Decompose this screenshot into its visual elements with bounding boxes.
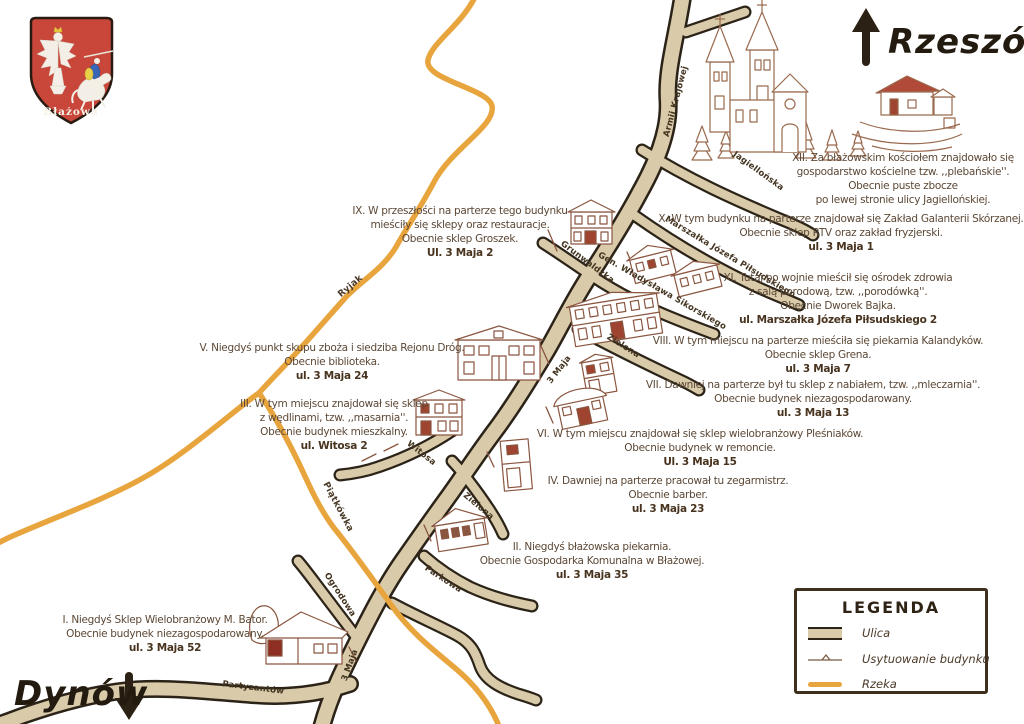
legend-item-label: Usytuowanie budynku xyxy=(862,652,990,666)
annotation-line: po lewej stronie ulicy Jagiellońskiej. xyxy=(792,193,1014,207)
annotation-line: I. Niegdyś Sklep Wielobranżowy M. Bator. xyxy=(62,613,267,627)
annotation-address: ul. 3 Maja 1 xyxy=(658,240,1023,254)
annotation-address: ul. Marszałka Józefa Piłsudskiego 2 xyxy=(724,313,953,327)
river-label-piatkowka: Piątkówka xyxy=(320,480,356,534)
annotation-address: ul. 3 Maja 13 xyxy=(646,406,980,420)
annotation-address: Ul. 3 Maja 2 xyxy=(352,246,567,260)
annotation-line: VI. W tym miejscu znajdował się sklep wi… xyxy=(537,427,863,441)
building-sketch-v xyxy=(455,326,543,380)
annotation-line: IV. Dawniej na parterze pracował tu zega… xyxy=(548,474,789,488)
annotation-line: X. W tym budynku na parterze znajdował s… xyxy=(658,212,1023,226)
arrow-north-icon xyxy=(852,8,880,62)
annotation-line: gospodarstwo kościelne tzw. ,,plebańskie… xyxy=(792,165,1014,179)
annotation-line: Obecnie budynek mieszkalny. xyxy=(240,425,428,439)
annotation-IX: IX. W przeszłości na parterze tego budyn… xyxy=(352,204,567,260)
annotation-line: IX. W przeszłości na parterze tego budyn… xyxy=(352,204,567,218)
annotation-line: Obecnie budynek niezagospodarowany. xyxy=(62,627,267,641)
legend-item-river: Rzeka xyxy=(808,677,985,691)
farmstead-sketch xyxy=(852,76,962,151)
legend-item-label: Rzeka xyxy=(862,677,897,691)
annotation-VI: VI. W tym miejscu znajdował się sklep wi… xyxy=(537,427,863,469)
building-sketch-iv xyxy=(500,439,532,491)
annotation-line: Obecnie biblioteka. xyxy=(200,355,465,369)
coat-of-arms-town-name: Błażowa xyxy=(43,106,99,118)
annotation-line: z wędlinami, tzw. ,,masarnia''. xyxy=(240,411,428,425)
annotation-X: X. W tym budynku na parterze znajdował s… xyxy=(658,212,1023,254)
annotation-line: II. Niegdyś błażowska piekarnia. xyxy=(480,540,705,554)
annotation-line: Obecnie barber. xyxy=(548,488,789,502)
annotation-VIII: VIII. W tym miejscu na parterze mieściła… xyxy=(653,334,983,376)
coat-of-arms: Błażowa xyxy=(31,18,113,123)
legend-title: LEGENDA xyxy=(797,598,985,617)
annotation-XII: XII. Za błażowskim kościołem znajdowało … xyxy=(792,151,1014,207)
annotation-XI: XI. Tutaj po wojnie mieścił się ośrodek … xyxy=(724,271,953,327)
annotation-address: ul. 3 Maja 24 xyxy=(200,369,465,383)
annotation-line: Obecnie budynek niezagospodarowany. xyxy=(646,392,980,406)
annotation-V: V. Niegdyś punkt skupu zboża i siedziba … xyxy=(200,341,465,383)
annotation-IV: IV. Dawniej na parterze pracował tu zega… xyxy=(548,474,789,516)
direction-label-north: Rzeszów xyxy=(888,22,1024,62)
legend-item-building-location: Usytuowanie budynku xyxy=(808,649,985,668)
annotation-line: III. W tym miejscu znajdował się sklep xyxy=(240,397,428,411)
annotation-address: ul. 3 Maja 52 xyxy=(62,641,267,655)
annotation-line: VIII. W tym miejscu na parterze mieściła… xyxy=(653,334,983,348)
annotation-VII: VII. Dawniej na parterze był tu sklep z … xyxy=(646,378,980,420)
street-label-jagiellonska: Jagiellońska xyxy=(730,149,785,193)
direction-label-south: Dynów xyxy=(14,674,148,714)
street-swatch-icon xyxy=(808,627,842,640)
annotation-line: Obecnie Gospodarka Komunalna w Błażowej. xyxy=(480,554,705,568)
annotation-III: III. W tym miejscu znajdował się sklep z… xyxy=(240,397,428,453)
annotation-address: Ul. 3 Maja 15 xyxy=(537,455,863,469)
annotation-line: Obecnie sklep Grena. xyxy=(653,348,983,362)
river-swatch-icon xyxy=(808,682,842,687)
legend-item-street: Ulica xyxy=(808,626,985,640)
annotation-line: XII. Za błażowskim kościołem znajdowało … xyxy=(792,151,1014,165)
annotation-II: II. Niegdyś błażowska piekarnia. Obecnie… xyxy=(480,540,705,582)
building-location-swatch-icon xyxy=(808,649,842,668)
annotation-address: ul. 3 Maja 7 xyxy=(653,362,983,376)
legend-box: LEGENDA Ulica Usytuowanie budynku Rzeka xyxy=(794,588,988,694)
annotation-line: Obecnie budynek w remoncie. xyxy=(537,441,863,455)
annotation-line: Obecnie sklep Groszek. xyxy=(352,232,567,246)
annotation-line: XI. Tutaj po wojnie mieścił się ośrodek … xyxy=(724,271,953,285)
annotation-line: Obecnie sklep RTV oraz zakład fryzjerski… xyxy=(658,226,1023,240)
annotation-line: V. Niegdyś punkt skupu zboża i siedziba … xyxy=(200,341,465,355)
annotation-address: ul. 3 Maja 23 xyxy=(548,502,789,516)
annotation-address: ul. Witosa 2 xyxy=(240,439,428,453)
annotation-line: z salą porodową, tzw. ,,porodówką''. xyxy=(724,285,953,299)
annotation-line: Obecnie puste zbocze xyxy=(792,179,1014,193)
annotation-I: I. Niegdyś Sklep Wielobranżowy M. Bator.… xyxy=(62,613,267,655)
annotation-line: VII. Dawniej na parterze był tu sklep z … xyxy=(646,378,980,392)
annotation-line: Obecnie Dworek Bajka. xyxy=(724,299,953,313)
building-sketch-ix xyxy=(568,200,615,244)
annotation-address: ul. 3 Maja 35 xyxy=(480,568,705,582)
blazowa-historic-map: Armii Krajowej Jagiellońska Marszałka Jó… xyxy=(0,0,1024,724)
annotation-line: mieściły się sklepy oraz restauracje. xyxy=(352,218,567,232)
legend-item-label: Ulica xyxy=(862,626,890,640)
